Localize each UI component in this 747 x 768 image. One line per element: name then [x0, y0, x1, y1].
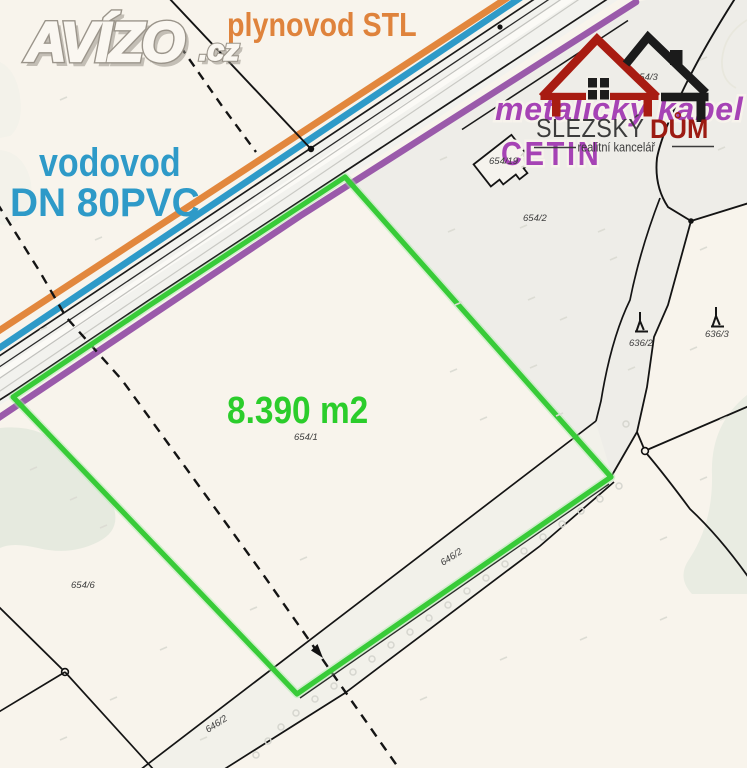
svg-text:636/3: 636/3 — [705, 329, 729, 340]
svg-text:DN 80PVC: DN 80PVC — [10, 180, 200, 225]
svg-text:SLEZSKÝ: SLEZSKÝ — [536, 115, 644, 143]
svg-text:654/19: 654/19 — [489, 156, 519, 167]
svg-text:plynovod STL: plynovod STL — [227, 6, 417, 43]
svg-text:636/2: 636/2 — [629, 338, 653, 349]
svg-text:654/2: 654/2 — [523, 213, 547, 224]
svg-text:654/1: 654/1 — [294, 432, 318, 443]
svg-text:DŮM: DŮM — [650, 111, 708, 144]
svg-text:AVÍZO: AVÍZO — [24, 10, 184, 73]
svg-text:654/6: 654/6 — [71, 580, 95, 591]
svg-text:.cz: .cz — [199, 34, 239, 67]
svg-text:vodovod: vodovod — [39, 139, 181, 184]
svg-text:realitní kancelář: realitní kancelář — [578, 141, 657, 155]
svg-text:8.390 m2: 8.390 m2 — [227, 389, 368, 431]
